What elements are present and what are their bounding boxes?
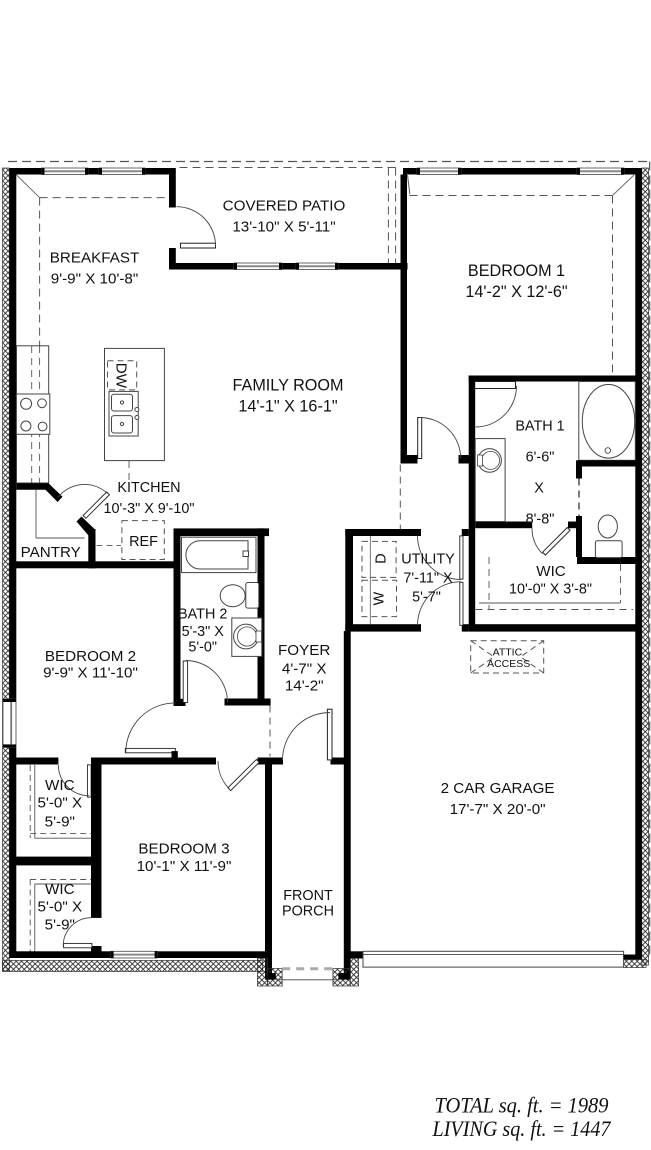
svg-text:KITCHEN: KITCHEN [117,480,180,496]
svg-text:13'-10" X 5'-11": 13'-10" X 5'-11" [232,219,335,236]
svg-text:BEDROOM 3: BEDROOM 3 [138,841,229,858]
svg-text:7'-11" X: 7'-11" X [403,571,453,587]
svg-text:ACCESS: ACCESS [487,658,530,670]
svg-text:BREAKFAST: BREAKFAST [50,250,139,267]
svg-text:5'-9": 5'-9" [45,814,75,831]
svg-text:5'-7": 5'-7" [412,590,441,606]
svg-text:2 CAR GARAGE: 2 CAR GARAGE [441,780,555,797]
svg-text:X: X [534,481,544,497]
svg-text:PORCH: PORCH [282,904,334,920]
svg-text:FRONT: FRONT [283,888,333,904]
svg-text:BEDROOM 2: BEDROOM 2 [45,648,136,665]
svg-text:D: D [373,553,389,563]
svg-text:TOTAL sq. ft. = 1989: TOTAL sq. ft. = 1989 [435,1093,609,1118]
svg-text:FOYER: FOYER [278,642,330,659]
svg-text:17'-7" X 20'-0": 17'-7" X 20'-0" [450,801,546,818]
svg-text:BATH 1: BATH 1 [515,419,564,435]
svg-text:W: W [372,591,388,605]
svg-text:LIVING sq. ft. = 1447: LIVING sq. ft. = 1447 [432,1116,612,1141]
svg-text:9'-9" X 11'-10": 9'-9" X 11'-10" [43,665,138,682]
svg-text:WIC: WIC [45,881,75,898]
svg-text:8'-8": 8'-8" [526,512,555,528]
svg-text:9'-9" X 10'-8": 9'-9" X 10'-8" [51,271,139,288]
svg-text:BATH 2: BATH 2 [178,607,227,623]
svg-text:5'-0": 5'-0" [188,640,217,656]
svg-text:REF: REF [129,534,158,550]
svg-text:14'-2" X 12'-6": 14'-2" X 12'-6" [465,283,568,301]
svg-text:FAMILY ROOM: FAMILY ROOM [233,377,344,395]
svg-text:10'-1" X 11'-9": 10'-1" X 11'-9" [137,858,232,875]
svg-text:14'-1" X 16-1": 14'-1" X 16-1" [238,398,337,416]
svg-text:5'-9": 5'-9" [45,916,75,933]
svg-text:6'-6": 6'-6" [526,450,555,466]
svg-text:PANTRY: PANTRY [21,544,81,561]
svg-text:5'-3" X: 5'-3" X [182,624,225,640]
svg-text:BEDROOM 1: BEDROOM 1 [468,262,565,280]
svg-text:10'-0" X 3'-8": 10'-0" X 3'-8" [509,582,592,598]
svg-text:5'-0" X: 5'-0" X [38,899,83,916]
svg-text:5'-0" X: 5'-0" X [38,795,83,812]
svg-text:UTILITY: UTILITY [401,552,455,568]
svg-text:4'-7" X: 4'-7" X [282,661,327,678]
svg-text:WIC: WIC [536,563,566,580]
svg-text:14'-2": 14'-2" [285,678,324,695]
svg-text:COVERED PATIO: COVERED PATIO [223,198,346,215]
svg-text:ATTIC: ATTIC [493,647,523,659]
svg-text:10'-3" X 9'-10": 10'-3" X 9'-10" [104,501,195,517]
svg-text:WIC: WIC [45,777,75,794]
svg-text:DW: DW [113,363,130,389]
